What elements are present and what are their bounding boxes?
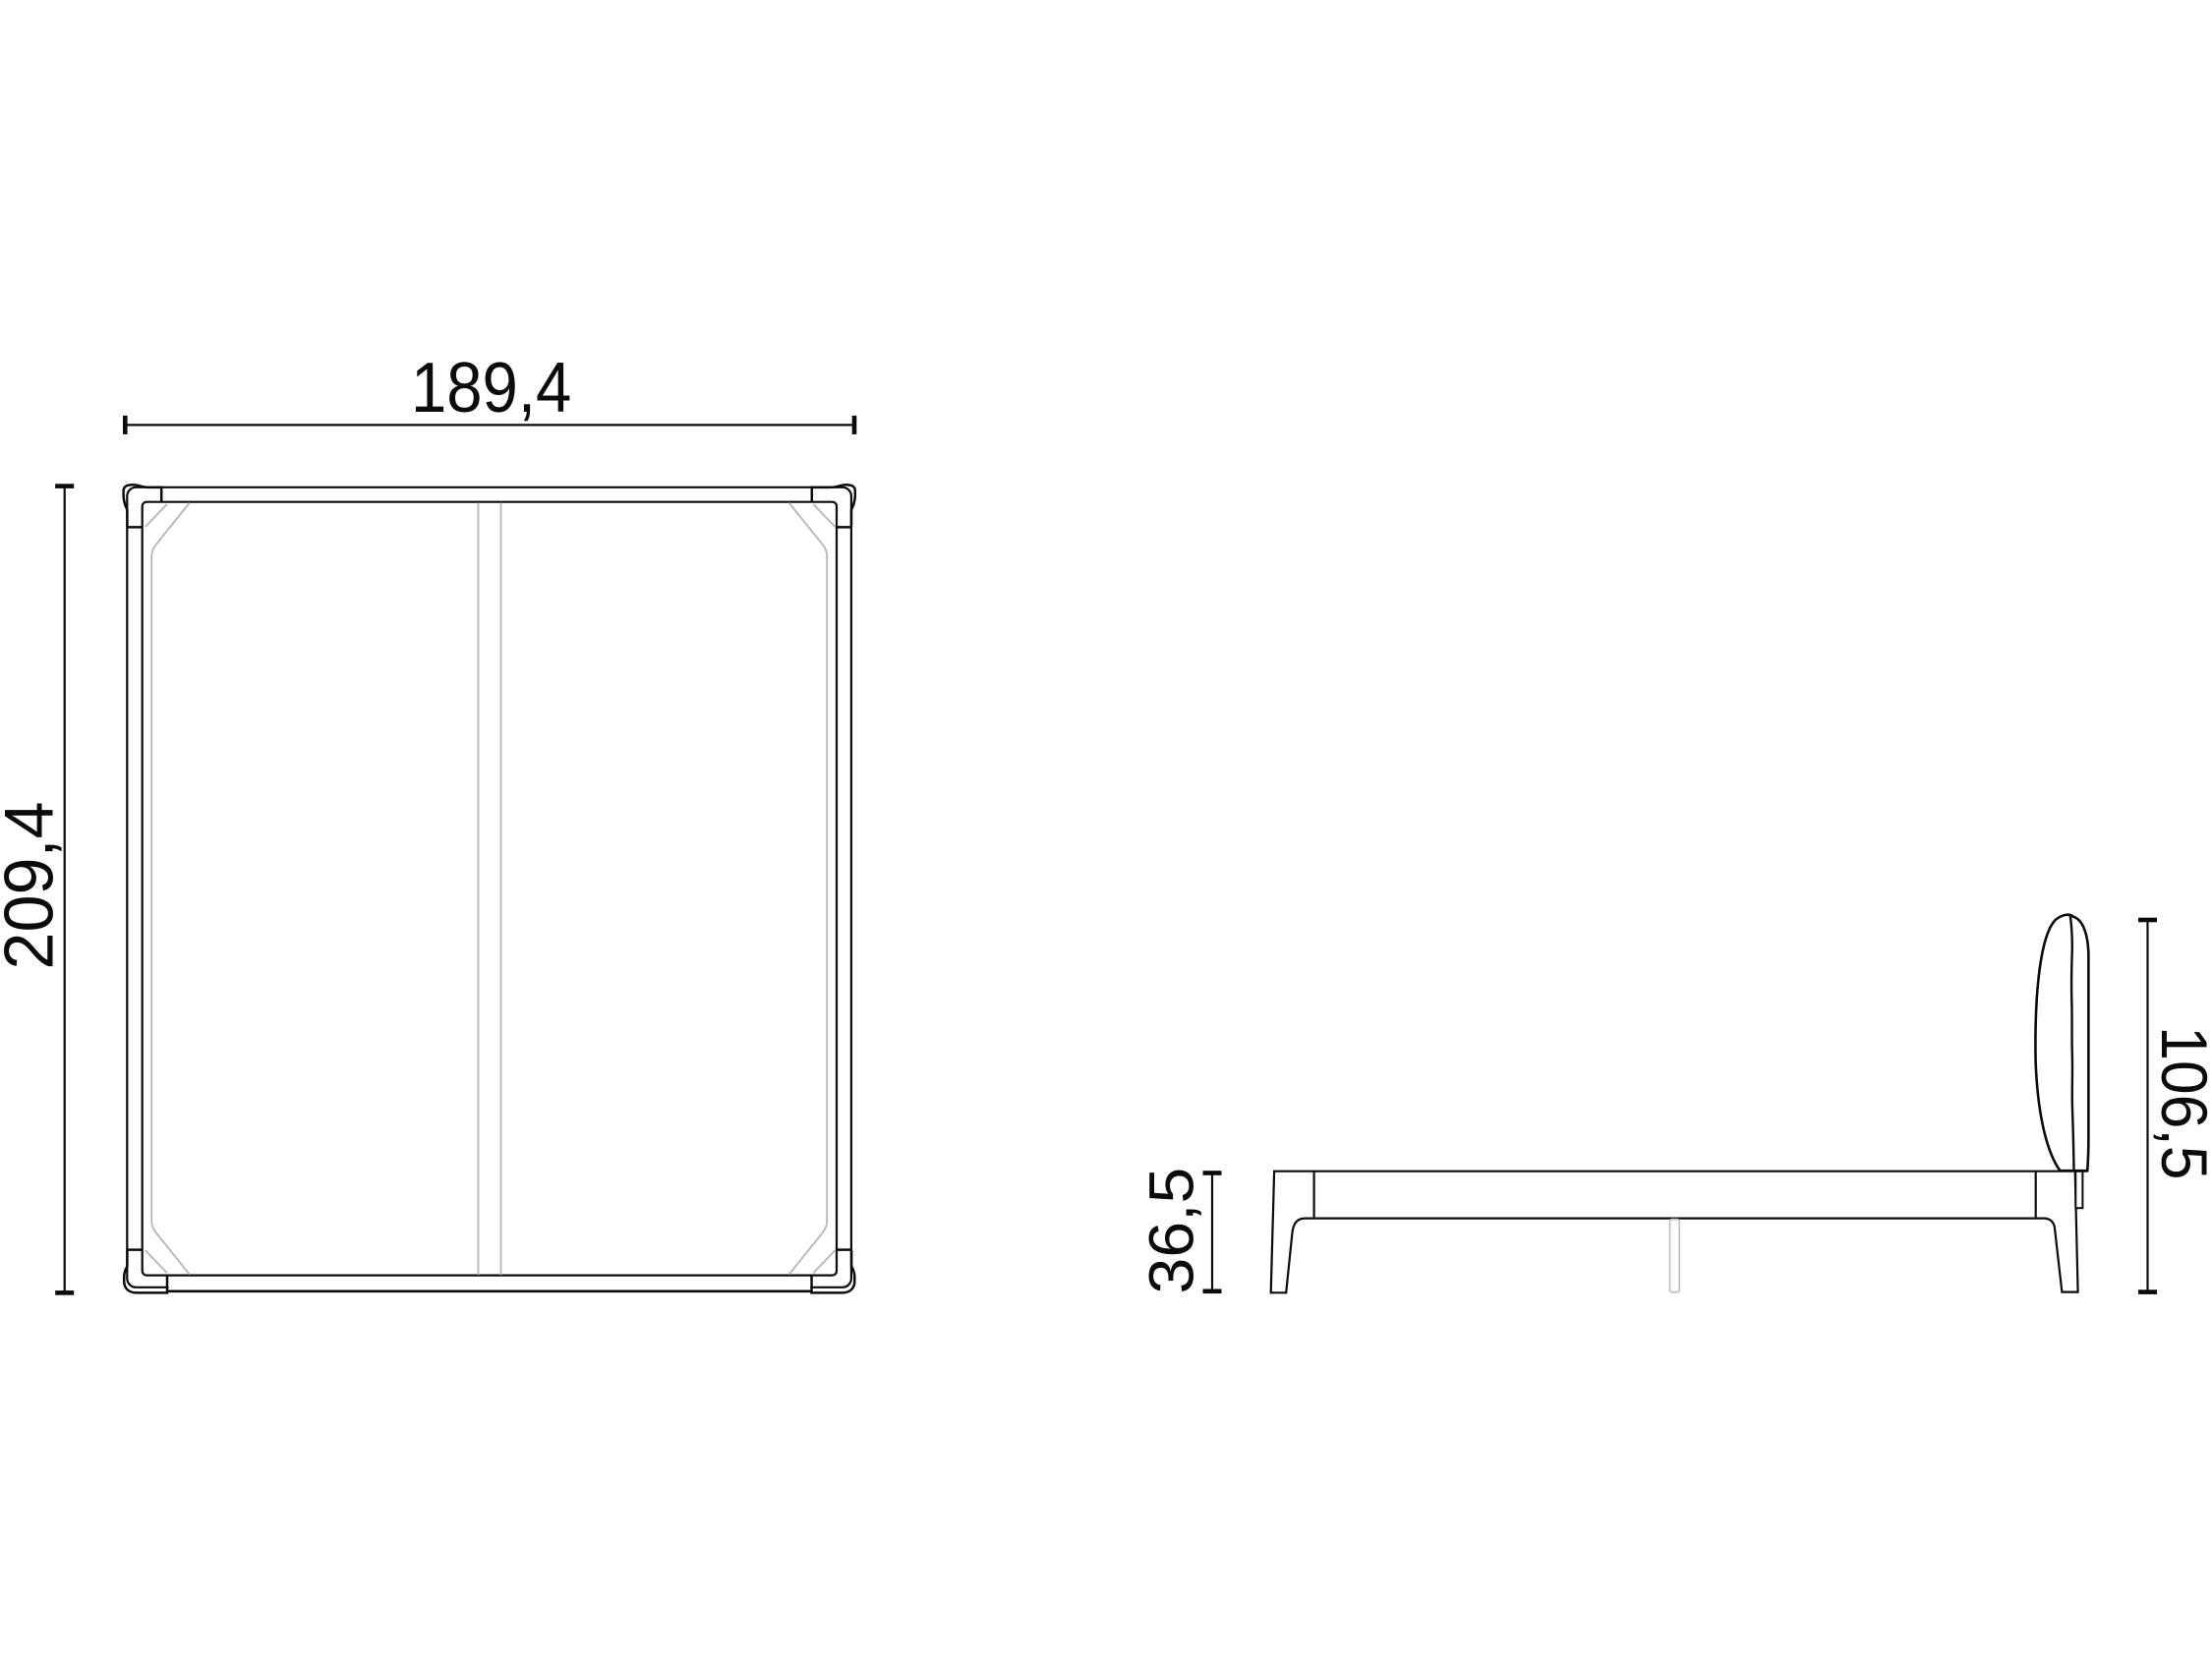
svg-text:189,4: 189,4: [411, 348, 571, 428]
svg-text:106,5: 106,5: [2148, 1026, 2212, 1179]
svg-text:209,4: 209,4: [0, 801, 68, 969]
svg-text:36,5: 36,5: [1135, 1168, 1206, 1294]
